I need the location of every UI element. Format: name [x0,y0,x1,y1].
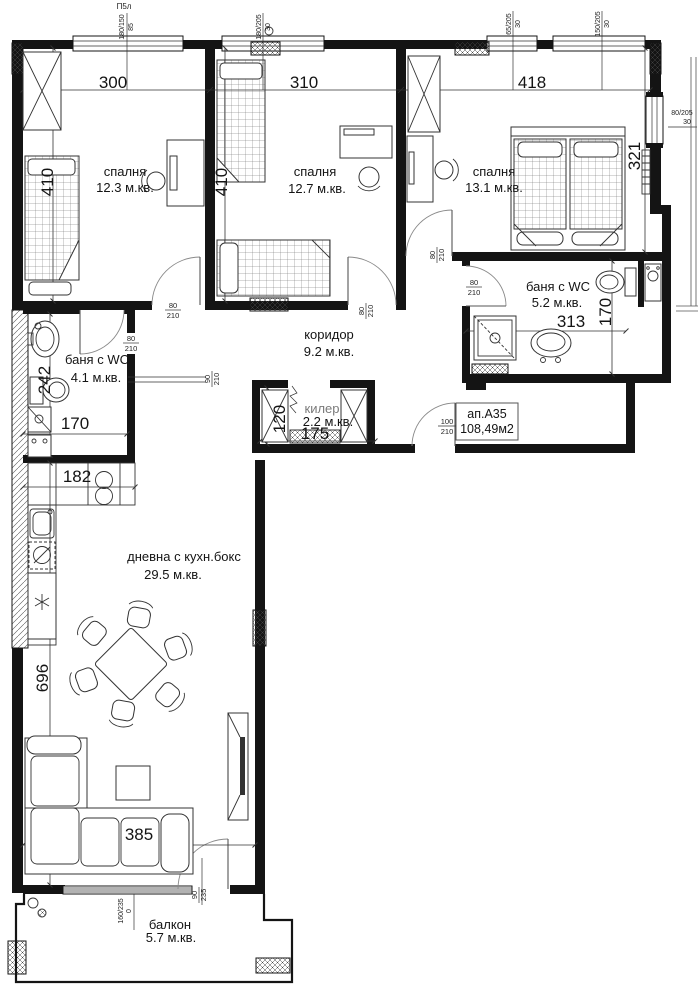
dining-table [94,627,168,701]
label-corridor-area: 9.2 м.кв. [304,344,354,359]
washing-machine [645,264,661,301]
window-5 [646,92,663,148]
balcony-pipe [38,909,46,917]
door-w: 100 [441,417,454,426]
label-bedroom3-area: 13.1 м.кв. [465,180,523,195]
door-w: 80 [169,301,177,310]
dim-bedroom3-depth: 321 [625,142,644,170]
column-balcony-right [256,958,290,973]
dining-chair [162,631,195,662]
balcony-window [63,886,192,894]
window-3 [487,36,537,51]
door-bedroom2 [348,257,396,305]
washing-machine [28,435,51,457]
floor-plan-drawing: ап.А35 108,49м2 спалня 12.3 м.кв. спалня… [0,0,698,1000]
door-size-bath1: 80 210 [121,333,142,354]
label-bath1-name: баня с WC [65,352,129,367]
desk [167,140,204,206]
balcony-window-parapet: 0 [126,909,133,913]
door-h: 235 [199,889,208,902]
tv-screen [240,737,245,795]
dining-chair [74,614,109,649]
wall-left-upper [12,40,23,310]
dim-closet-width: 175 [301,424,329,443]
wall-corridor-bottom [252,444,415,453]
door-h: 210 [437,249,446,262]
sofa [25,736,193,874]
wall-right-lower [662,205,671,382]
dim-bedroom1-depth: 410 [38,168,57,196]
door-w: 80 [357,307,366,315]
radiator-top-2 [455,42,489,55]
window4-size: 150/205 [595,11,602,36]
label-corridor-name: коридор [304,327,354,342]
toilet [596,268,636,296]
window1-parapet: 85 [128,23,135,31]
dim-bath2-depth: 170 [596,298,615,326]
kitchen [28,463,135,645]
window1-size: 180/150 [119,14,126,39]
dim-closet-depth: 120 [270,405,289,433]
dim-bedroom1-width: 300 [99,73,127,92]
bed-single [217,60,265,182]
wardrobe [408,56,440,132]
window3-size: 65/205 [506,13,513,35]
wall-closet-left [252,380,260,453]
label-bath2-area: 5.2 м.кв. [532,295,582,310]
apartment-id: ап.А35 [467,407,506,421]
door-h: 210 [212,373,221,386]
door-size-entrance: 100 210 [438,417,456,436]
wall-living-bottom-a [23,885,65,894]
label-bath2-name: баня с WC [526,279,590,294]
dim-bedroom2-depth: 410 [212,168,231,196]
door-h: 210 [167,311,180,320]
radiator-corridor [250,298,288,311]
label-bedroom1-area: 12.3 м.кв. [96,180,154,195]
closet-rail-squiggle [290,386,297,413]
radiator-top-1 [251,42,280,55]
wall-vestibule-bottom [455,444,635,453]
door-w: 80 [470,278,478,287]
wall-bath1-top-a [23,305,80,314]
door-w: 80 [127,334,135,343]
door-h: 210 [125,344,138,353]
tv-cabinet [228,713,248,820]
apartment-label-box: ап.А35 108,49м2 [456,403,518,440]
fridge [28,573,56,639]
label-living-name: дневна с кухн.бокс [127,549,241,564]
wardrobe [23,52,61,130]
wall-bath1-right [127,305,135,462]
desk-chair [358,167,380,191]
door-size-living-passage: 90 210 [203,371,221,387]
dim-bath1-depth: 242 [35,366,54,394]
label-bedroom2-area: 12.7 м.кв. [288,181,346,196]
window4-parapet: 30 [604,20,611,28]
dim-living-width: 385 [125,825,153,844]
door-h: 210 [441,427,454,436]
wall-bed2-bed3 [396,48,406,310]
door-w: 80 [428,251,437,259]
floor-plan-page: ап.А35 108,49м2 спалня 12.3 м.кв. спалня… [0,0,698,1000]
neighbor-building-lines [676,57,698,311]
bed-double [511,127,625,250]
plan-mark: П5л [117,2,132,11]
dining-chair [125,599,153,629]
label-bedroom3-name: спалня [473,164,516,179]
column-top-right [650,43,661,74]
balcony-drain [28,898,38,908]
balcony-window-size: 160/235 [118,898,125,923]
wall-living-bottom-b [230,885,265,894]
sink [531,329,571,363]
label-balcony-area: 5.7 м.кв. [146,930,196,945]
column-top-left [12,43,23,74]
radiator-bath2 [472,364,508,374]
window5-size: 80/205 [671,110,693,117]
dining-chair [108,699,136,729]
dishwasher [29,542,55,569]
window-4 [553,36,645,51]
coffee-table [116,766,150,800]
label-bath1-area: 4.1 м.кв. [71,370,121,385]
door-w: 90 [190,891,199,899]
dim-bath1-width: 170 [61,414,89,433]
wall-closet-right [367,380,375,453]
door-h: 210 [366,305,375,318]
shower [474,316,516,360]
door-size-bedroom3: 80 210 [428,247,446,263]
desk [407,136,433,202]
wall-bath2-niche [638,261,644,307]
wall-bed3-bath2 [452,252,662,261]
dim-living-depth: 696 [33,664,52,692]
stove [96,472,113,505]
column-living-right [253,610,266,646]
bed-single [217,240,330,296]
door-bedroom1 [152,257,200,305]
wall-bath2-left-a [462,261,470,266]
wall-living-right [255,460,265,893]
desk-chair [435,159,458,181]
door-w: 90 [203,375,212,383]
sink [28,321,59,357]
wall-left-shared-hatched [12,310,28,648]
window2-parapet: 30 [265,23,272,31]
label-bedroom2-name: спалня [294,164,337,179]
beam-passage [128,377,206,382]
door-size-balcony: 90 235 [190,887,208,903]
desk [340,126,392,158]
wall-stub-vestibule [466,383,486,390]
dining-chair [153,679,188,714]
apartment-area: 108,49м2 [460,422,514,436]
dim-bath2-width: 313 [557,312,585,331]
wall-vestibule-right [626,382,635,453]
window2-size: 180/205 [256,14,263,39]
shower [28,407,51,432]
label-living-area: 29.5 м.кв. [144,567,202,582]
window3-parapet: 30 [515,20,522,28]
dim-bedroom2-width: 310 [290,73,318,92]
dim-bedroom3-width: 418 [518,73,546,92]
door-size-bath2: 80 210 [466,278,482,297]
dining-chair [67,665,100,696]
door-h: 210 [468,288,481,297]
dim-kitchen-width: 182 [63,467,91,486]
wall-bath2-left-b [462,306,470,374]
wall-bath2-bottom [462,374,671,383]
door-size-bedroom2: 80 210 [357,303,375,319]
door-bath1 [80,310,124,354]
window-1 [73,36,183,51]
label-bedroom1-name: спалня [104,164,147,179]
wall-left-lower [12,648,23,893]
window5-parapet: 30 [683,119,691,126]
door-size-bedroom1: 80 210 [165,301,181,320]
